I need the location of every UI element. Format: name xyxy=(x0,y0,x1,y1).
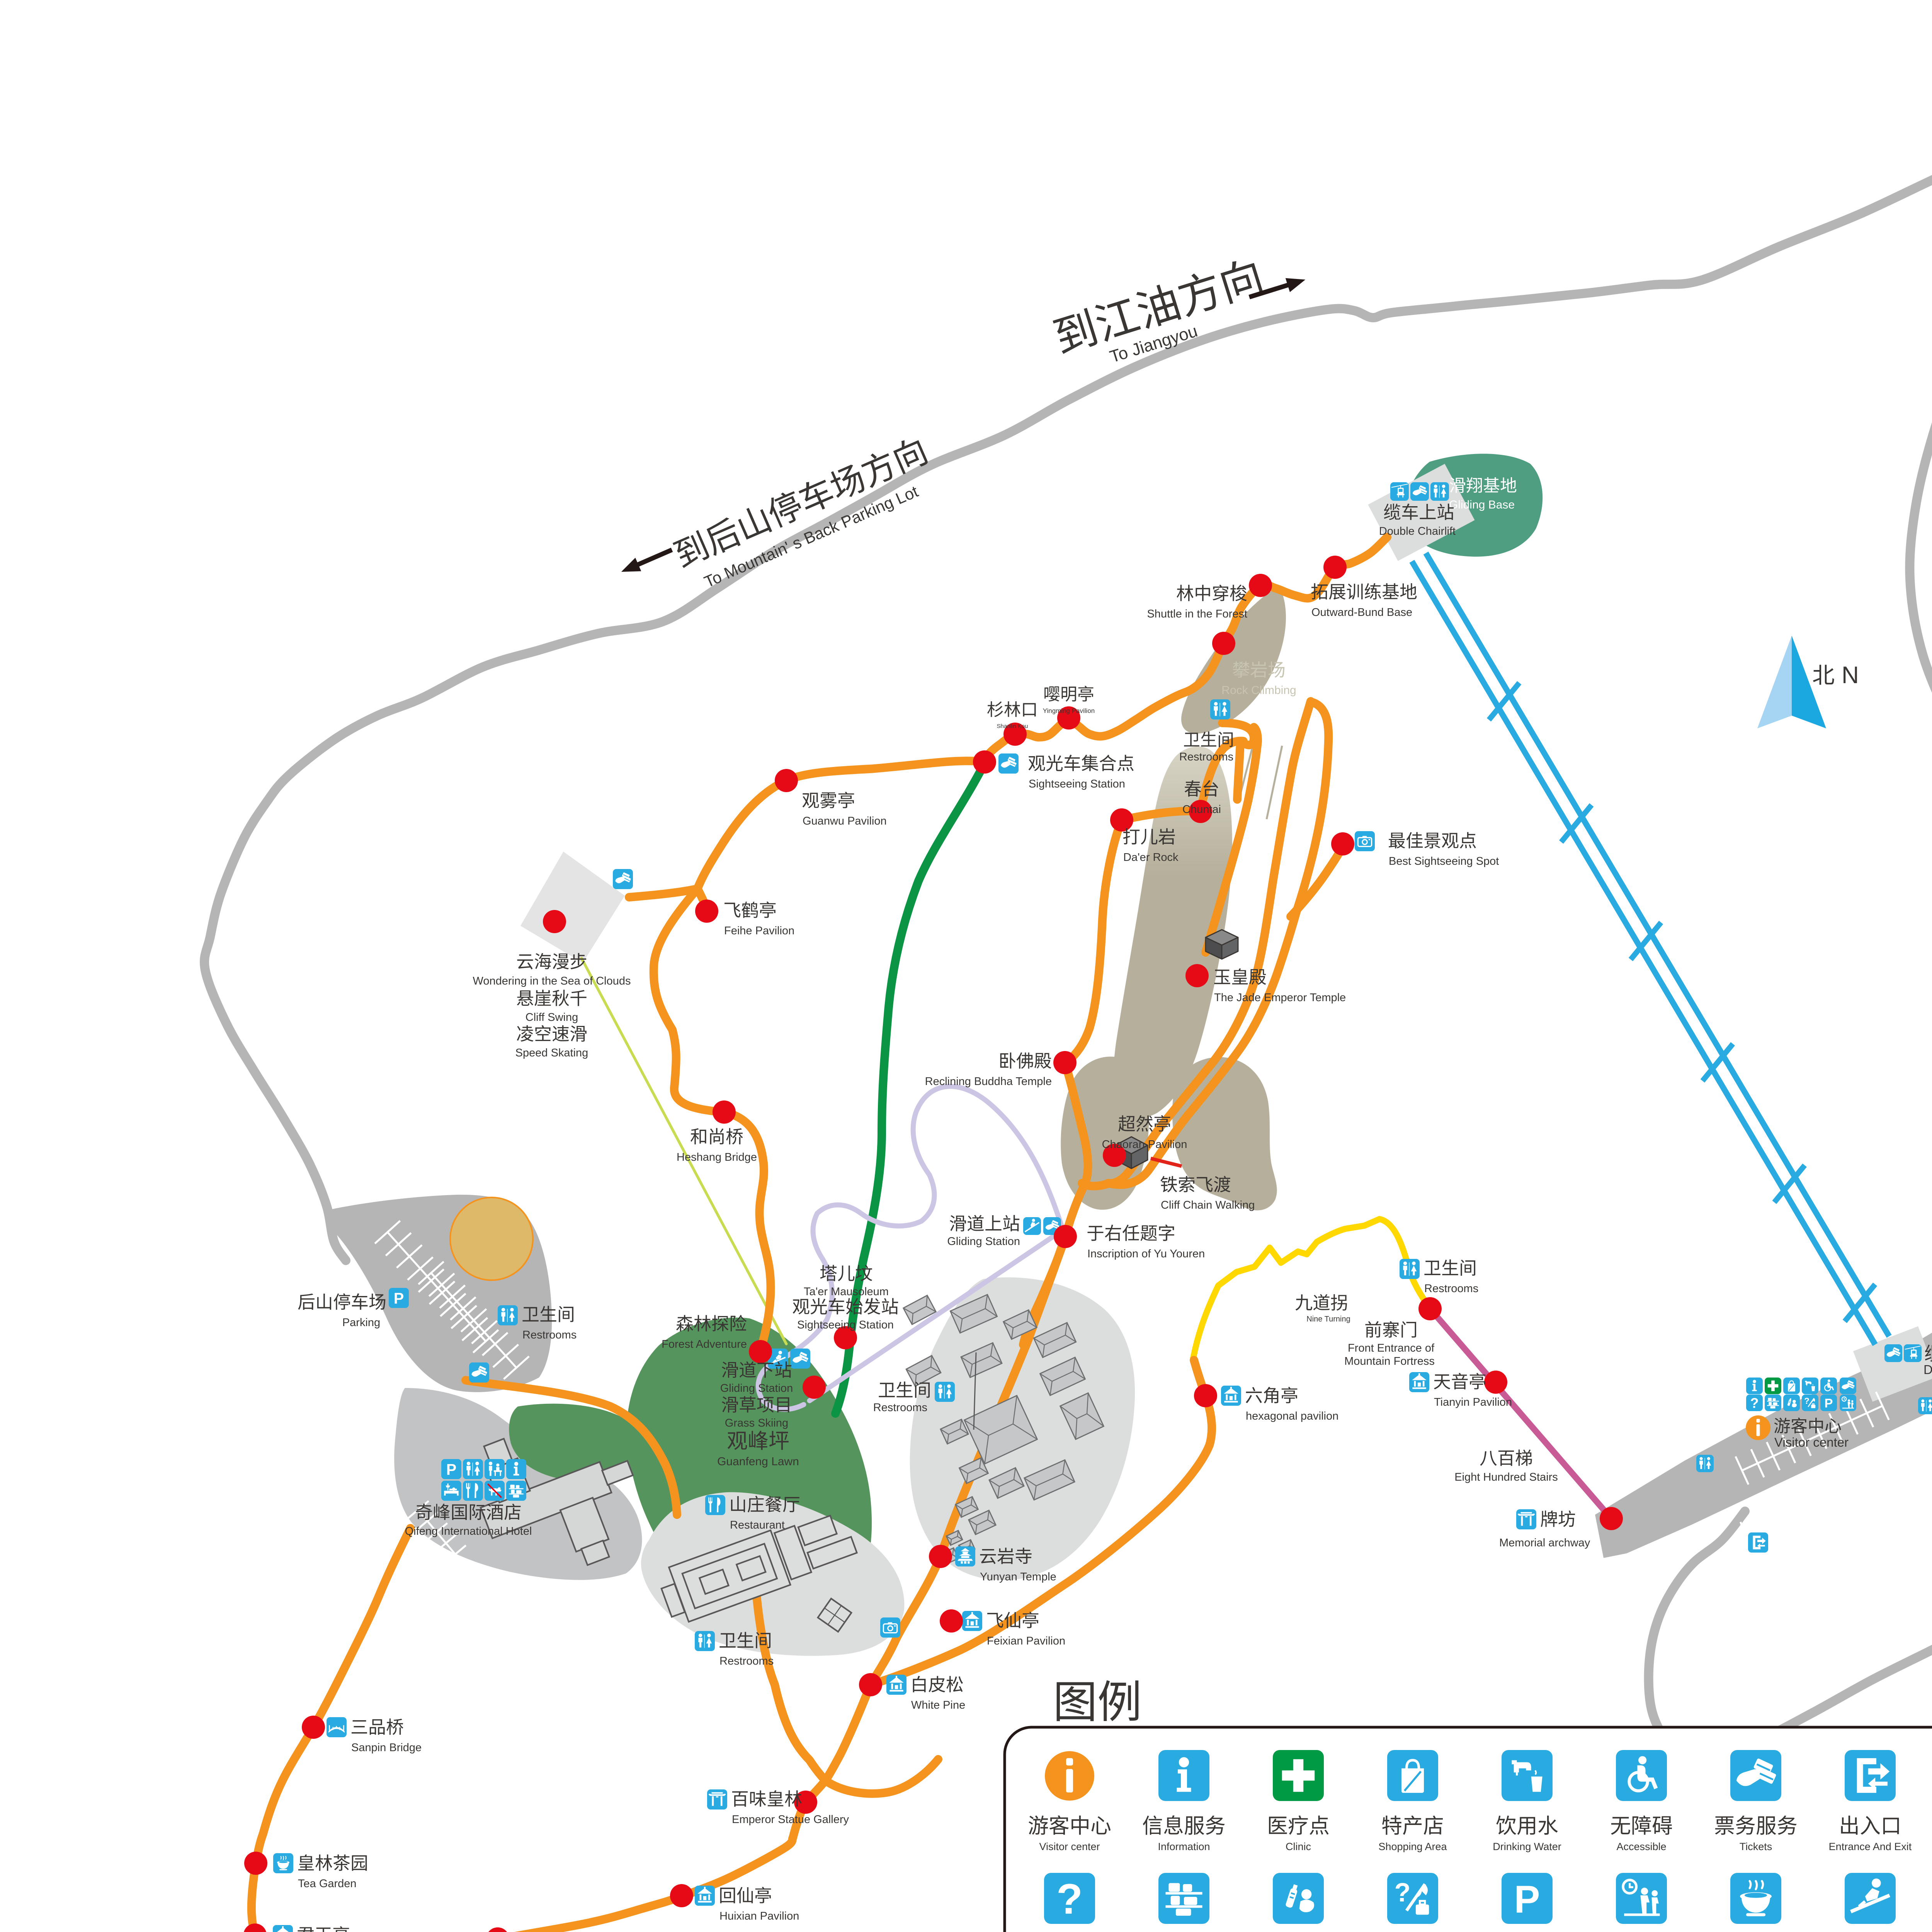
svg-text:Wondering in the Sea of Clouds: Wondering in the Sea of Clouds xyxy=(473,975,631,987)
svg-text:Visitor center: Visitor center xyxy=(1774,1435,1849,1449)
svg-text:Eight Hundred Stairs: Eight Hundred Stairs xyxy=(1454,1471,1558,1483)
svg-text:Inscription of Yu Youren: Inscription of Yu Youren xyxy=(1087,1248,1205,1260)
svg-text:Front Entrance of: Front Entrance of xyxy=(1348,1342,1435,1354)
svg-text:Mountain Fortress: Mountain Fortress xyxy=(1344,1355,1435,1367)
svg-text:Best Sightseeing Spot: Best Sightseeing Spot xyxy=(1389,855,1499,867)
svg-text:N: N xyxy=(1842,662,1859,689)
svg-text:Parking: Parking xyxy=(342,1316,380,1329)
svg-text:Guanwu Pavilion: Guanwu Pavilion xyxy=(803,815,887,827)
svg-text:Restrooms: Restrooms xyxy=(719,1655,774,1667)
svg-text:Chaoran Pavilion: Chaoran Pavilion xyxy=(1102,1138,1187,1151)
svg-text:Gliding Base: Gliding Base xyxy=(1449,498,1515,511)
svg-text:Tianyin Pavilion: Tianyin Pavilion xyxy=(1434,1396,1512,1408)
svg-text:Emperor Statue Gallery: Emperor Statue Gallery xyxy=(732,1813,849,1826)
svg-text:Restrooms: Restrooms xyxy=(522,1329,577,1341)
svg-text:Cliff Chain Walking: Cliff Chain Walking xyxy=(1161,1199,1255,1211)
svg-text:Double Chairlift: Double Chairlift xyxy=(1379,525,1456,537)
svg-text:Heshang Bridge: Heshang Bridge xyxy=(677,1151,757,1163)
svg-text:P: P xyxy=(394,1290,404,1307)
svg-text:White Pine: White Pine xyxy=(911,1699,965,1711)
svg-text:Tea Garden: Tea Garden xyxy=(298,1878,357,1890)
svg-text:Restrooms: Restrooms xyxy=(873,1401,927,1414)
svg-text:Cliff Swing: Cliff Swing xyxy=(526,1011,578,1024)
svg-text:Yunyan Temple: Yunyan Temple xyxy=(980,1571,1056,1583)
svg-text:Huixian Pavilion: Huixian Pavilion xyxy=(719,1910,799,1922)
svg-text:Entrance And Exit: Entrance And Exit xyxy=(1829,1841,1912,1852)
svg-text:Qifeng International Hotel: Qifeng International Hotel xyxy=(405,1525,532,1537)
svg-text:Clinic: Clinic xyxy=(1286,1841,1311,1852)
svg-text:Memorial archway: Memorial archway xyxy=(1499,1537,1590,1549)
svg-text:Visitor center: Visitor center xyxy=(1039,1841,1100,1852)
svg-text:Forest Adventure: Forest Adventure xyxy=(662,1338,747,1350)
svg-text:Outward-Bund Base: Outward-Bund Base xyxy=(1311,606,1412,619)
svg-text:Information: Information xyxy=(1158,1841,1210,1852)
svg-text:Yingming Pavilion: Yingming Pavilion xyxy=(1043,707,1095,714)
svg-text:P: P xyxy=(1514,1878,1540,1921)
svg-text:Drinking Water: Drinking Water xyxy=(1493,1841,1561,1852)
svg-text:hexagonal pavilion: hexagonal pavilion xyxy=(1246,1410,1338,1422)
svg-text:Gliding Station: Gliding Station xyxy=(947,1235,1020,1248)
svg-text:P: P xyxy=(1825,1396,1833,1410)
svg-text:Feihe Pavilion: Feihe Pavilion xyxy=(724,925,794,937)
svg-text:Gliding Station: Gliding Station xyxy=(720,1382,793,1395)
svg-text:Guanfeng Lawn: Guanfeng Lawn xyxy=(717,1455,799,1468)
svg-text:Sightseeing Station: Sightseeing Station xyxy=(1029,778,1125,790)
svg-text:Double Chairlift: Double Chairlift xyxy=(1923,1362,1932,1377)
svg-text:Sightseeing Station: Sightseeing Station xyxy=(797,1319,894,1331)
svg-text:Nine Turning: Nine Turning xyxy=(1306,1315,1350,1323)
svg-text:Da'er Rock: Da'er Rock xyxy=(1123,851,1179,864)
svg-text:Sanpin Bridge: Sanpin Bridge xyxy=(351,1742,422,1754)
svg-text:Chuntai: Chuntai xyxy=(1182,803,1221,816)
svg-text:Restaurant: Restaurant xyxy=(730,1519,785,1531)
svg-text:Reclining Buddha Temple: Reclining Buddha Temple xyxy=(925,1075,1052,1088)
svg-text:Speed Skating: Speed Skating xyxy=(515,1047,588,1059)
svg-text:Shopping Area: Shopping Area xyxy=(1378,1841,1447,1852)
svg-text:?: ? xyxy=(1804,1396,1810,1406)
svg-text:P: P xyxy=(446,1461,456,1478)
svg-text:?: ? xyxy=(1395,1878,1411,1907)
svg-text:Shanlin Kou: Shanlin Kou xyxy=(997,723,1028,730)
svg-text:Grass Skiing: Grass Skiing xyxy=(725,1417,788,1429)
svg-text:Tickets: Tickets xyxy=(1740,1841,1772,1852)
svg-text:Restrooms: Restrooms xyxy=(1424,1282,1478,1295)
svg-text:Rock Climbing: Rock Climbing xyxy=(1221,684,1296,697)
svg-text:Shuttle in the Forest: Shuttle in the Forest xyxy=(1147,608,1247,620)
svg-text:?: ? xyxy=(1056,1876,1083,1923)
svg-text:Restrooms: Restrooms xyxy=(1179,751,1233,763)
svg-text:Accessible: Accessible xyxy=(1616,1841,1666,1852)
svg-text:The Jade Emperor Temple: The Jade Emperor Temple xyxy=(1214,992,1346,1004)
svg-text:Feixian Pavilion: Feixian Pavilion xyxy=(987,1635,1065,1647)
svg-text:?: ? xyxy=(1750,1395,1759,1411)
svg-text:Ta'er Mausoleum: Ta'er Mausoleum xyxy=(804,1286,889,1298)
